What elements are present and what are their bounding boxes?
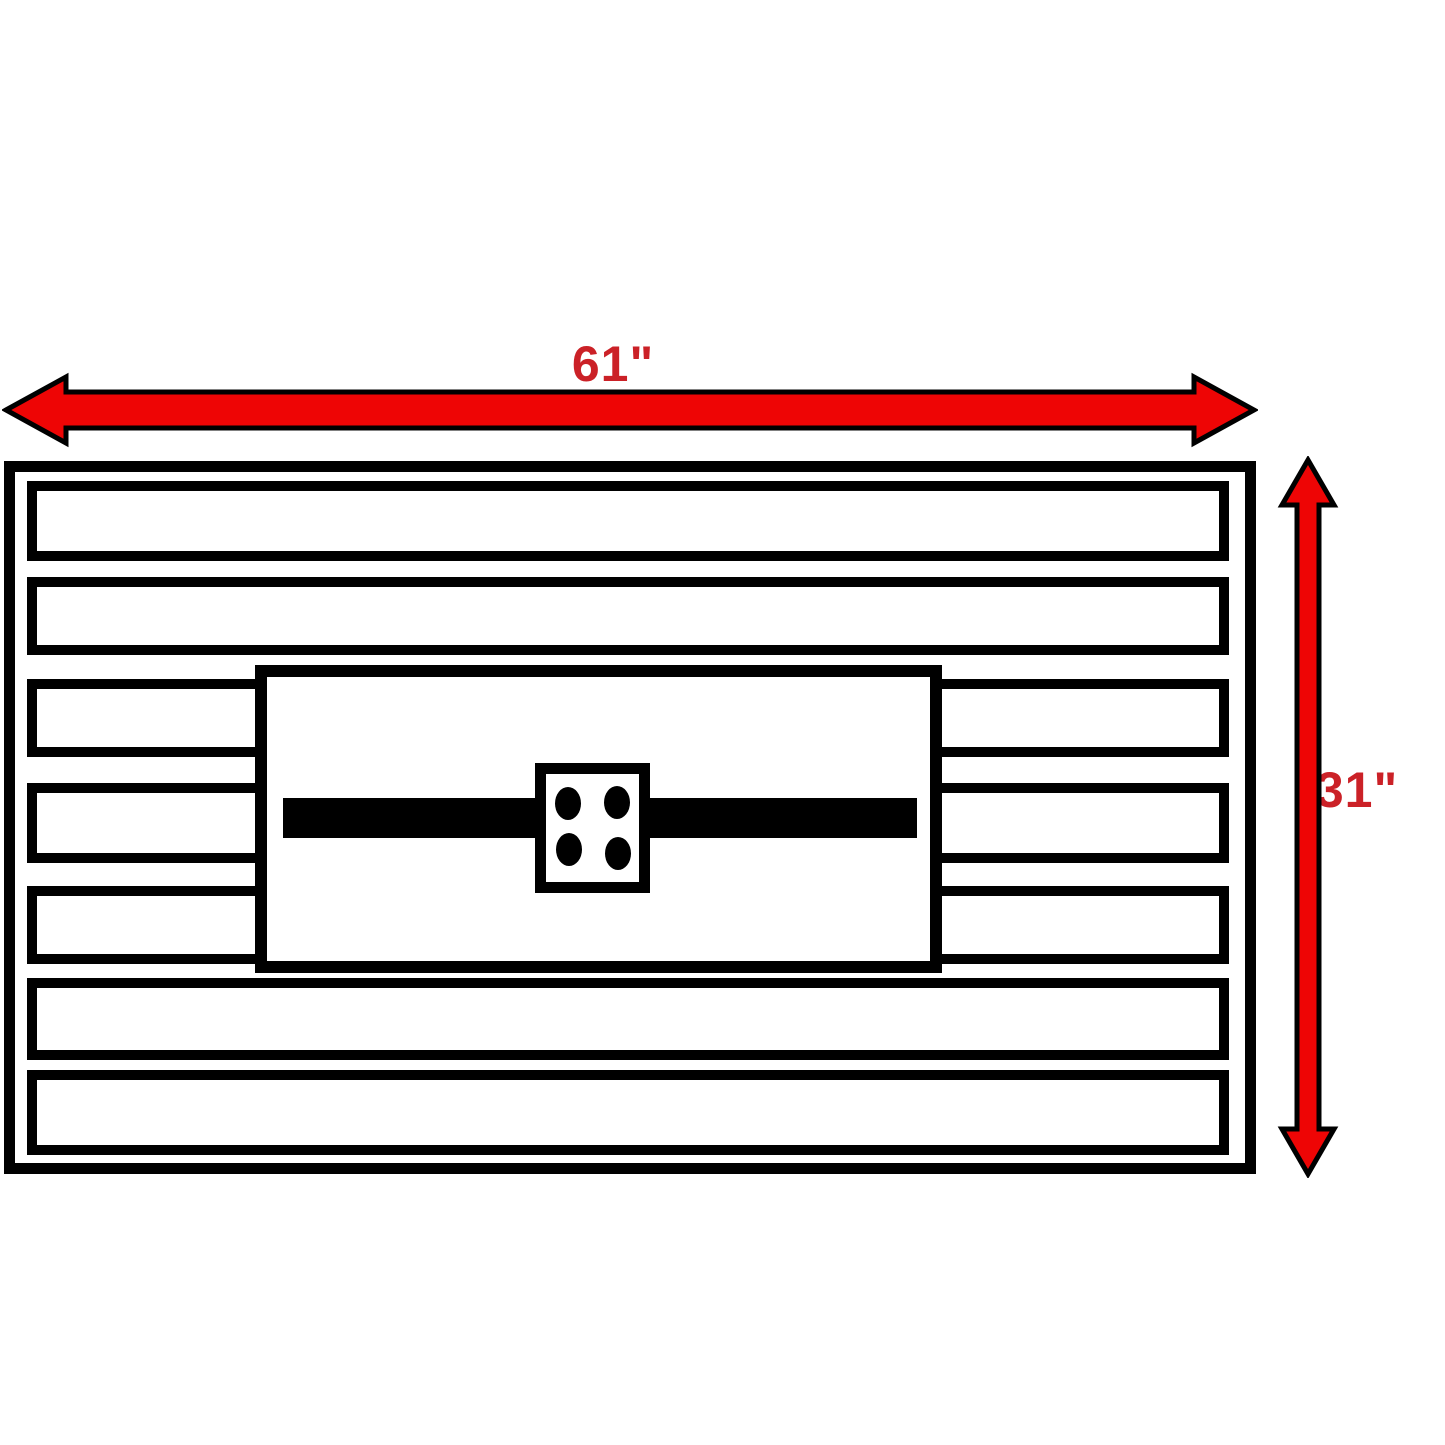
- bolt-hole-icon: [555, 787, 581, 820]
- slat-row-5-right: [930, 886, 1229, 964]
- width-arrow-shape: [6, 377, 1254, 443]
- diagram-canvas: 61" 31": [0, 0, 1445, 1445]
- slat-row-1: [27, 481, 1229, 561]
- slat-row-3-left: [27, 679, 267, 757]
- height-dimension-arrow: [1272, 456, 1344, 1178]
- slat-row-3-right: [930, 679, 1229, 757]
- height-arrow-shape: [1282, 460, 1334, 1174]
- width-dimension-arrow: [2, 372, 1258, 450]
- bolt-hole-icon: [605, 837, 631, 870]
- slat-row-4-right: [930, 783, 1229, 863]
- slat-row-6: [27, 978, 1229, 1060]
- bolt-hole-icon: [604, 786, 630, 819]
- slat-row-2: [27, 577, 1229, 655]
- mounting-plate: [535, 763, 650, 893]
- slat-row-7: [27, 1070, 1229, 1155]
- slat-row-5-left: [27, 886, 267, 964]
- bolt-hole-icon: [556, 833, 582, 866]
- slat-row-4-left: [27, 783, 267, 863]
